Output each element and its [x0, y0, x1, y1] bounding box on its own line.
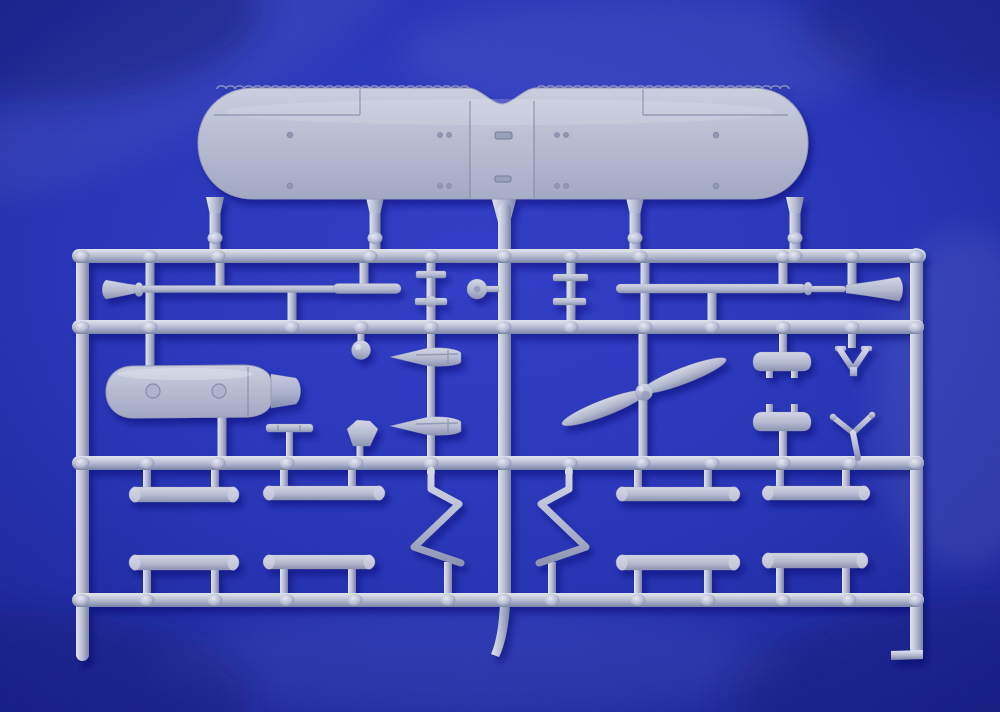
interplane-strut-part [129, 555, 239, 571]
sprue-joint [909, 250, 924, 262]
wing-rigging-hole [713, 183, 719, 189]
control-horn-part [266, 424, 313, 432]
interplane-strut-part [129, 487, 239, 503]
t-bar [553, 274, 588, 281]
wing-rigging-hole [447, 133, 452, 138]
propeller-spinner [642, 391, 650, 399]
v-strut-tip [869, 412, 875, 418]
sprue-joint [705, 457, 720, 469]
sprue-photo: Light grey injection-moulded polystyrene… [0, 0, 1000, 712]
sprue-joint [349, 457, 364, 469]
sprue-joint [909, 594, 924, 606]
nacelle-sheen [117, 368, 253, 380]
wing-rigging-hole [438, 133, 443, 138]
interplane-strut-part [762, 486, 870, 501]
sprue-joint [776, 594, 791, 606]
interplane-strut-part [263, 486, 385, 501]
nacelle-rear-deck [271, 374, 301, 408]
t-bar [553, 298, 586, 305]
rod-club-end [333, 284, 401, 294]
rod-shaft [141, 286, 337, 293]
sprue-joint [75, 321, 90, 333]
sprue-joint [424, 321, 439, 333]
rod-thin-shaft [810, 286, 846, 292]
wing-slot [495, 176, 511, 182]
sprue-joint [909, 321, 924, 333]
sprue-joint [628, 232, 643, 244]
ball-highlight [355, 344, 361, 350]
wing-rigging-hole [447, 184, 452, 189]
sprue-joint [211, 250, 226, 262]
wing-rigging-hole [438, 184, 443, 189]
interplane-strut-part [263, 555, 375, 570]
sprue-joint [788, 250, 803, 262]
interplane-strut-part [616, 487, 740, 502]
sprue-joint [909, 457, 924, 469]
sprue-joint [701, 594, 716, 606]
sprue-joint [348, 594, 363, 606]
sprue-joint [441, 594, 456, 606]
sprue-joint [211, 457, 226, 469]
rod-shaft [616, 284, 806, 293]
sprue-joint [631, 594, 646, 606]
cockpit-opening [212, 384, 226, 398]
sprue-joint [776, 321, 791, 333]
t-bar [416, 271, 446, 278]
sprue-joint [545, 594, 560, 606]
sprue-rail-right-foot [891, 650, 923, 660]
v-strut-tip [830, 414, 836, 420]
sprue-joint [564, 250, 579, 262]
sprue-joint [363, 250, 378, 262]
sprue-joint [842, 594, 857, 606]
sprue-joint [140, 457, 155, 469]
sprue-joint [636, 457, 651, 469]
sprue-joint [705, 321, 720, 333]
sprue-joint [788, 232, 803, 244]
t-bar-boss [425, 296, 437, 307]
sprue-joint [368, 232, 383, 244]
sprue-joint [143, 321, 158, 333]
sprue-connector [641, 256, 650, 331]
sprue-joint [497, 457, 512, 469]
sprue-joint [497, 321, 512, 333]
wing-rigging-hole [287, 183, 293, 189]
wing-rigging-hole [555, 184, 560, 189]
sprue-connector [218, 415, 227, 462]
sprue-joint [497, 594, 512, 606]
upper-wing-part [198, 86, 808, 199]
sprue-joint [776, 457, 791, 469]
t-bar-link [569, 281, 574, 299]
wing-center-section [470, 99, 534, 199]
sprue-joint [75, 250, 90, 262]
wing-rigging-hole [564, 184, 569, 189]
sprue-joint [354, 321, 369, 333]
propeller-hub-highlight [638, 386, 643, 391]
sprue-joint [424, 250, 439, 262]
sprue-connector [146, 256, 155, 331]
sprue-joint [280, 457, 295, 469]
sprue-joint [143, 250, 158, 262]
interplane-strut-part [762, 553, 868, 569]
cockpit-opening [146, 384, 160, 398]
sprue-joint [140, 594, 155, 606]
sprue-joint [845, 321, 860, 333]
sprue-joint [75, 457, 90, 469]
photo-frame: Light grey injection-moulded polystyrene… [0, 0, 1000, 712]
sprue-joint [75, 594, 90, 606]
wing-rigging-hole [287, 132, 293, 138]
ball-fitting-part [352, 341, 371, 360]
sprue-joint [285, 321, 300, 333]
sprue-joint [564, 321, 579, 333]
wing-rigging-hole [555, 133, 560, 138]
sprue-runner-center [498, 203, 511, 607]
sprue-joint [208, 594, 223, 606]
v-strut-stem [850, 367, 857, 376]
sprue-joint [638, 321, 653, 333]
sprue-joint [497, 250, 512, 262]
sprue-joint [845, 250, 860, 262]
wing-rigging-hole [564, 133, 569, 138]
sprue-joint [633, 250, 648, 262]
wing-rigging-hole [713, 132, 719, 138]
wing-slot [495, 132, 512, 139]
sprue-joint [208, 232, 223, 244]
interplane-strut-part [616, 555, 740, 571]
sprue-connector [427, 364, 435, 420]
disc-hub [474, 286, 480, 292]
sprue-joint [280, 594, 295, 606]
